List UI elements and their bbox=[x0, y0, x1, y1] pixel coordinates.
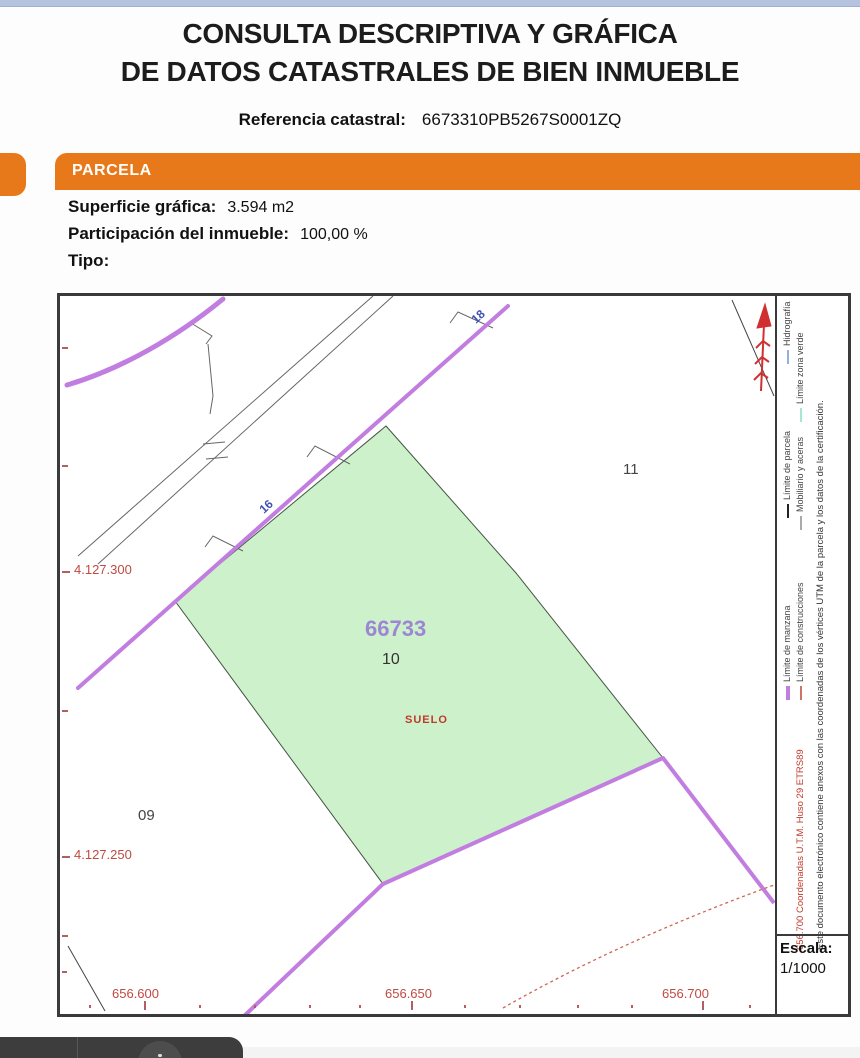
legend-label: Límite de construcciones bbox=[795, 582, 805, 682]
legend-item-manzana: Límite de manzana bbox=[781, 605, 793, 700]
cadastral-map-frame: 66733 10 SUELO 11 09 18 16 4.127.300 4.1… bbox=[57, 293, 851, 1017]
construction-notch bbox=[191, 323, 212, 344]
map-canvas: 66733 10 SUELO 11 09 18 16 4.127.300 4.1… bbox=[60, 296, 775, 1014]
page-title-line1: CONSULTA DESCRIPTIVA Y GRÁFICA bbox=[0, 18, 860, 50]
certification-note: Este documento electrónico contiene anex… bbox=[815, 400, 827, 950]
field-superficie-label: Superficie gráfica: bbox=[68, 197, 216, 216]
cadastral-reference-value: 6673310PB5267S0001ZQ bbox=[422, 110, 621, 129]
legend-item-parcela: Límite de parcela bbox=[781, 431, 793, 518]
legend-item-mobiliario: Mobiliario y aceras bbox=[794, 437, 806, 530]
neighbor-parcel-label: 09 bbox=[138, 807, 155, 824]
parcela-line-swatch bbox=[787, 504, 789, 518]
hidrografia-line-swatch bbox=[787, 350, 789, 364]
page-title-line2: DE DATOS CATASTRALES DE BIEN INMUEBLE bbox=[0, 56, 860, 88]
neighbor-parcel-label: 11 bbox=[623, 461, 639, 478]
parcela-section-title: PARCELA bbox=[72, 162, 152, 180]
legend-label: Mobiliario y aceras bbox=[795, 437, 805, 512]
field-participacion: Participación del inmueble:100,00 % bbox=[68, 224, 368, 244]
legend-item-hidrografia: Hidrografía bbox=[781, 301, 793, 364]
legend-label: Hidrografía bbox=[782, 301, 792, 346]
street-number-label: 18 bbox=[468, 307, 488, 327]
zona-verde-line-swatch bbox=[800, 408, 802, 422]
cadastral-map: 66733 10 SUELO 11 09 18 16 4.127.300 4.1… bbox=[60, 296, 775, 1014]
block-limit-curve bbox=[67, 299, 223, 385]
x-coordinate-label: 656.600 bbox=[112, 986, 159, 1001]
utm-coordinates-note: 656.700 Coordenadas U.T.M. Huso 29 ETRS8… bbox=[795, 749, 807, 950]
legend-label: Límite zona verde bbox=[795, 332, 805, 404]
scale-box: Escala: 1/1000 bbox=[777, 934, 848, 1014]
bottom-toolbar[interactable] bbox=[0, 1037, 243, 1058]
x-coordinate-label: 656.650 bbox=[385, 986, 432, 1001]
top-window-strip bbox=[0, 0, 860, 7]
toolbar-divider bbox=[77, 1037, 78, 1058]
field-participacion-label: Participación del inmueble: bbox=[68, 224, 289, 243]
legend-label: Límite de manzana bbox=[782, 605, 792, 682]
parcel-number-label: 10 bbox=[382, 651, 400, 668]
left-axis-ticks bbox=[62, 348, 70, 972]
bottom-axis-ticks bbox=[90, 1001, 750, 1010]
scale-value: 1/1000 bbox=[780, 960, 845, 977]
field-superficie-value: 3.594 m2 bbox=[227, 199, 294, 216]
field-superficie: Superficie gráfica:3.594 m2 bbox=[68, 197, 368, 217]
cadastral-reference-row: Referencia catastral:6673310PB5267S0001Z… bbox=[0, 110, 860, 130]
map-legend-sidebar: Límite de manzana Límite de construccion… bbox=[775, 296, 848, 1014]
parcel-polygon bbox=[175, 426, 663, 884]
legend-item-zona-verde: Límite zona verde bbox=[794, 332, 806, 422]
parcel-code-label: 66733 bbox=[365, 616, 426, 641]
legend-item-construcciones: Límite de construcciones bbox=[794, 582, 806, 700]
north-arrow-icon bbox=[754, 304, 771, 391]
y-coordinate-label: 4.127.300 bbox=[74, 562, 132, 577]
section-tab-accent bbox=[0, 153, 26, 196]
cadastral-reference-label: Referencia catastral: bbox=[239, 110, 406, 129]
y-coordinate-label: 4.127.250 bbox=[74, 847, 132, 862]
parcel-fields: Superficie gráfica:3.594 m2 Participació… bbox=[68, 197, 368, 278]
parcel-line bbox=[68, 946, 105, 1011]
manzana-line-swatch bbox=[786, 686, 790, 700]
field-tipo-label: Tipo: bbox=[68, 251, 109, 270]
mobiliario-line-swatch bbox=[800, 516, 802, 530]
land-use-label: SUELO bbox=[405, 714, 448, 726]
dashed-boundary-line bbox=[503, 885, 774, 1008]
construction-line bbox=[208, 344, 213, 414]
x-coordinate-label: 656.700 bbox=[662, 986, 709, 1001]
scale-label: Escala: bbox=[780, 940, 845, 957]
cadastral-document-page: CONSULTA DESCRIPTIVA Y GRÁFICA DE DATOS … bbox=[0, 0, 860, 1058]
legend-label: Límite de parcela bbox=[782, 431, 792, 500]
parcela-section-bar: PARCELA bbox=[55, 153, 860, 190]
field-participacion-value: 100,00 % bbox=[300, 226, 368, 243]
parcel-line bbox=[206, 457, 228, 459]
toolbar-button-glyph-icon bbox=[158, 1054, 162, 1057]
construcciones-line-swatch bbox=[800, 686, 802, 700]
field-tipo: Tipo: bbox=[68, 251, 368, 271]
